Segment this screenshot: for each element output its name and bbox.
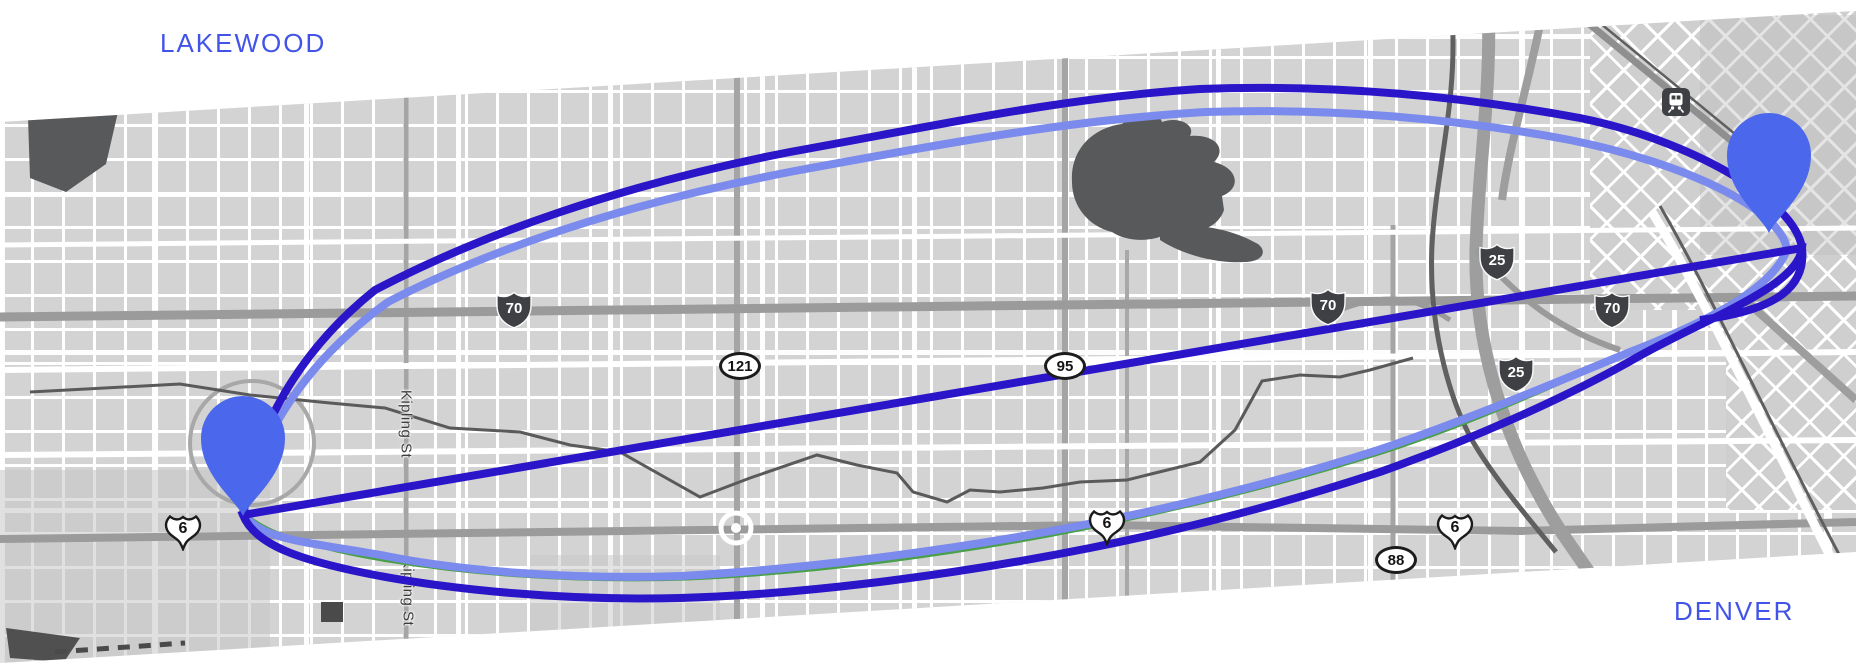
city-label-denver: DENVER: [1674, 596, 1794, 627]
route-shield-state-95: 95: [1044, 352, 1086, 380]
destination-pin[interactable]: [1725, 113, 1813, 238]
route-shield-interstate-70: 70: [1594, 291, 1630, 329]
route-shield-interstate-25: 25: [1479, 243, 1515, 281]
route-overlay: [0, 0, 1856, 671]
route-shield-us-6: 6: [163, 513, 203, 551]
route-outbound-line[interactable]: [243, 88, 1802, 599]
route-shield-us-6: 6: [1087, 508, 1127, 546]
route-shield-interstate-70: 70: [496, 291, 532, 329]
city-label-lakewood: LAKEWOOD: [160, 28, 326, 59]
route-shield-interstate-25: 25: [1498, 355, 1534, 393]
route-shield-interstate-70: 70: [1310, 288, 1346, 326]
route-shield-state-121: 121: [719, 352, 761, 380]
map-canvas[interactable]: Kipling StKipling St 7070702525666121958…: [0, 0, 1856, 671]
route-return-line[interactable]: [244, 111, 1787, 577]
origin-pin[interactable]: [199, 396, 287, 521]
route-shield-us-6: 6: [1435, 512, 1475, 550]
route-shield-state-88: 88: [1375, 546, 1417, 574]
transit-station-icon[interactable]: [1662, 88, 1690, 116]
